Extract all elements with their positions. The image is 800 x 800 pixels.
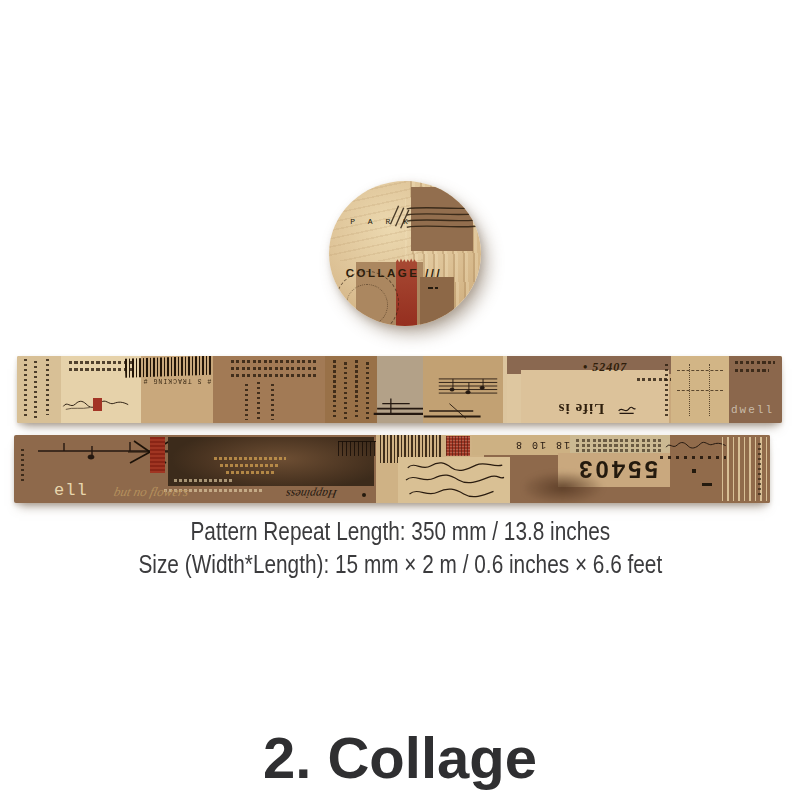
tape-strip-1: # S TRACKING # [17,356,782,423]
tape-strip-2: ell but no flowers Happiness 18 10 8 554… [14,435,770,503]
dwell-text: dwell [731,404,774,416]
product-image: P A R K COLLAGE /// # S TRACKING # [0,0,800,800]
life-is-text: Life is [533,400,629,417]
vertical-text-mark [758,443,761,495]
ink-mark [702,483,712,486]
vertical-text-mark [24,359,27,419]
ink-mark [428,287,433,289]
tiny-text-row [174,479,232,482]
scribble-mark [617,403,637,417]
tape-roll-face: P A R K COLLAGE /// [329,181,481,326]
tiny-text-row [69,361,133,364]
dotted-line [660,456,726,459]
product-title: 2. Collage [0,724,800,791]
ink-mark [435,287,438,289]
vertical-text-mark [46,359,49,415]
tiny-text-row [231,360,319,363]
ink-mark [362,493,366,497]
ruled-line [709,364,710,416]
tracking-text: # S TRACKING # [129,377,225,384]
vertical-text-mark [665,364,668,416]
tiny-text-row [231,374,319,377]
vertical-text-mark [366,362,369,420]
vertical-text-mark [333,360,336,420]
spec-line-2: Size (Width*Length): 15 mm × 2 m / 0.6 i… [0,548,800,581]
tiny-text-row [576,444,664,447]
red-stamp-mark [93,398,102,411]
vertical-text-mark [257,382,260,420]
tape-roll-photo: P A R K COLLAGE /// [329,181,481,326]
tiny-text-row [735,369,769,372]
ink-mark [692,469,696,473]
red-stamp-mark [150,437,165,473]
spec-line-1: Pattern Repeat Length: 350 mm / 13.8 inc… [0,515,800,548]
vertical-text-mark [21,449,24,483]
script-text: but no flowers [112,484,190,500]
ell-text: ell [54,481,88,500]
tiny-text-row [69,368,133,371]
tiny-text-row [576,439,664,442]
product-specs: Pattern Repeat Length: 350 mm / 13.8 inc… [0,515,800,581]
ruled-line [677,390,723,391]
serial-number-text: • 52407 [583,360,627,375]
spec-line-1-text: Pattern Repeat Length: 350 mm / 13.8 inc… [190,515,610,548]
faded-gold-text-row [214,457,286,460]
handwriting-mark [402,459,508,501]
pinstripe-patch [722,437,768,501]
vertical-text-mark [271,384,274,420]
tiny-text-row [576,449,664,452]
vertical-text-mark [344,362,347,420]
sketch-drawing [419,400,489,422]
spec-line-2-text: Size (Width*Length): 15 mm × 2 m / 0.6 i… [138,548,662,581]
script-text: Happiness [285,486,338,501]
ruled-line [677,370,723,371]
tiny-text-row [231,367,319,370]
red-stamp-mark [446,436,470,456]
ruled-line [689,364,690,416]
small-numbers-text: 18 10 8 [514,439,570,450]
tick-marks [338,441,376,456]
park-stamp-text: P A R K [350,217,412,226]
barcode [125,356,226,378]
handwriting-mark [664,437,730,453]
paper-patch [420,277,453,326]
vertical-text-mark [34,361,37,419]
faded-gold-text-row [226,471,274,474]
vertical-text-mark [355,360,358,420]
dark-smudge [524,465,620,503]
vertical-text-mark [245,384,248,420]
music-staff [437,376,499,396]
faded-gold-text-row [220,464,280,467]
tiny-text-row [735,361,775,364]
postmark-circle-icon [346,284,388,326]
